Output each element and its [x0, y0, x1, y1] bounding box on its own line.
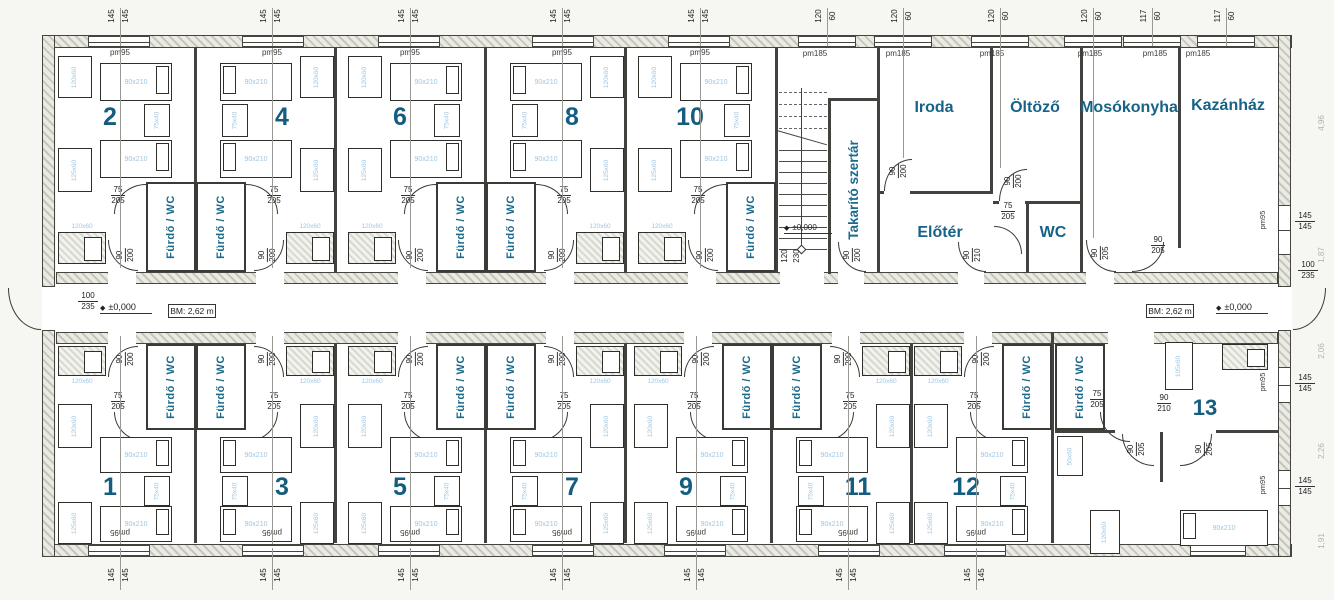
window-dim-b: 60 [905, 3, 915, 29]
sink [602, 237, 620, 261]
foyer-door-dim: 90210 [962, 242, 982, 268]
window [88, 36, 150, 47]
dim-tick [1000, 8, 1001, 46]
foyer-door-dim-a: 90 [962, 248, 973, 263]
dim-tick [696, 548, 697, 590]
bed-size-label: 90x210 [125, 521, 148, 528]
bath-door-dim-a: 75 [843, 391, 858, 402]
main-door-dim-left-b: 235 [78, 302, 97, 312]
wardrobe-label: 125x60 [71, 159, 78, 180]
dim-tick [120, 8, 121, 46]
wardrobe-label: 120x60 [889, 415, 896, 436]
wardrobe-label: 125x60 [647, 512, 654, 533]
window-dim-b: 60 [829, 3, 839, 29]
wardrobe-label: 120x60 [71, 415, 78, 436]
nightstand-label: 75x40 [154, 482, 161, 500]
window-dim-a: 145 [398, 562, 408, 588]
nightstand: 75x40 [434, 476, 460, 506]
wall-segment [624, 48, 627, 272]
door-gap [1086, 272, 1114, 284]
door-arc-icon [8, 288, 41, 330]
window-line [243, 551, 303, 552]
wardrobe-label: 120x60 [71, 66, 78, 87]
bath-door-dim-b: 205 [398, 402, 417, 412]
room-number: 3 [264, 472, 300, 502]
sink [312, 237, 330, 261]
bed-size-label: 90x210 [245, 79, 268, 86]
wardrobe: 125x60 [590, 148, 624, 192]
pillow [446, 66, 459, 94]
nightstand: 75x40 [222, 476, 248, 506]
pm-label: pm185 [1138, 48, 1172, 58]
nightstand-label: 75x40 [444, 482, 451, 500]
pillow [513, 440, 526, 466]
boiler-label: Kazánház [1181, 95, 1275, 117]
wardrobe-label: 50x60 [1067, 447, 1074, 465]
kitchen-counter [348, 346, 396, 376]
witness-line [1093, 46, 1094, 238]
nightstand: 75x40 [512, 104, 538, 137]
counter-label: 120x60 [58, 377, 106, 386]
boiler-door-dim-b: 205 [1148, 246, 1167, 256]
witness-line [562, 336, 563, 544]
wardrobe-label: 120x60 [1101, 521, 1108, 542]
wardrobe-label: 125x60 [889, 512, 896, 533]
pillow [1012, 440, 1025, 466]
window-dim-a: 145 [260, 3, 270, 29]
wall-left-upper [42, 35, 55, 287]
laundry-door-dim-a: 90 [1090, 246, 1101, 261]
bed: 90x210 [1180, 510, 1268, 546]
sink [374, 351, 392, 373]
door-arc-icon [1293, 288, 1326, 330]
wardrobe: 125x60 [300, 148, 334, 192]
sink [664, 237, 682, 261]
wardrobe-label: 125x60 [313, 512, 320, 533]
main-door-dim-right-b: 235 [1298, 271, 1317, 281]
witness-line [976, 336, 977, 544]
wall-segment [828, 98, 831, 274]
wardrobe: 125x60 [300, 502, 334, 544]
pillow [732, 509, 745, 535]
bed-size-label: 90x210 [415, 452, 438, 459]
bed-size-label: 90x210 [125, 156, 148, 163]
kitchen-counter [286, 346, 334, 376]
entry-door-dim: 90200 [833, 346, 853, 372]
bed-size-label: 90x210 [535, 79, 558, 86]
room13-door-dim-b: 210 [1154, 404, 1173, 414]
bed-size-label: 90x210 [415, 79, 438, 86]
door-gap [108, 272, 136, 284]
laundry-label: Mosókonyha [1079, 97, 1179, 119]
window-dim-b: 145 [122, 3, 132, 29]
room13-vestibule-dim-a-a: 90 [1126, 442, 1137, 457]
bed: 90x210 [220, 63, 292, 101]
entry-door-dim-a: 90 [547, 352, 558, 367]
bed: 90x210 [796, 437, 868, 473]
pillow [446, 509, 459, 535]
window-line [1279, 230, 1290, 231]
edge-dim: 1,91 [1316, 526, 1326, 556]
entry-door-dim: 90200 [971, 346, 991, 372]
stair-tread [779, 172, 827, 173]
wall-segment [910, 344, 913, 543]
bath-door-dim-b: 205 [684, 402, 703, 412]
wall-segment [1026, 201, 1029, 272]
window [1278, 367, 1291, 403]
pm-label: pm185 [1073, 48, 1107, 58]
pillow [513, 143, 526, 171]
wc-label: WC [1033, 222, 1073, 244]
door-gap [958, 272, 984, 284]
wall-segment [828, 98, 880, 101]
stair-tread [779, 238, 827, 239]
stair-dashed-line [779, 92, 827, 93]
bed-size-label: 90x210 [981, 452, 1004, 459]
bath-label: Fürdő / WC [789, 342, 805, 432]
entry-door-dim: 90200 [115, 242, 135, 268]
pm-label: pm185 [975, 48, 1009, 58]
stair-level-marker: ±0,000 [784, 222, 832, 234]
window-dim-a: 145 [684, 562, 694, 588]
pillow [1012, 509, 1025, 535]
entry-door-dim-b: 200 [982, 349, 992, 368]
kitchen-counter [634, 346, 682, 376]
pm-label: pm185 [881, 48, 915, 58]
wall-segment [334, 48, 337, 272]
entry-door-dim-a: 90 [833, 352, 844, 367]
bath-door-dim: 75205 [388, 391, 428, 411]
bed-size-label: 90x210 [415, 521, 438, 528]
wardrobe-label: 125x60 [651, 159, 658, 180]
room13-vestibule-dim-b: 90205 [1194, 436, 1214, 462]
counter-label: 120x60 [638, 222, 686, 231]
level-marker-right: ±0,000 [1216, 302, 1268, 314]
wardrobe: 120x60 [348, 404, 382, 448]
window-dim-a: 120 [815, 3, 825, 29]
window-dim-a: 145 [550, 562, 560, 588]
edge-dim: 2,26 [1316, 436, 1326, 466]
wardrobe: 125x60 [348, 502, 382, 544]
wardrobe-label: 120x60 [361, 415, 368, 436]
room13-vestibule-dim-b-b: 205 [1205, 439, 1215, 458]
wardrobe-label: 120x60 [313, 66, 320, 87]
sink [602, 351, 620, 373]
entry-door-dim-b: 200 [126, 349, 136, 368]
witness-line [272, 336, 273, 544]
window-dim-a: 120 [1081, 3, 1091, 29]
main-door-gap-right [1278, 287, 1292, 330]
cleaning-door-dim-a: 90 [842, 248, 853, 263]
wardrobe-label: 120x60 [313, 415, 320, 436]
right-window-dim-b: 145 [1295, 222, 1314, 232]
wardrobe: 120x60 [300, 56, 334, 98]
wardrobe: 120x60 [1090, 510, 1120, 554]
cleaning-door-dim: 90200 [842, 242, 862, 268]
window-dim-a: 117 [1214, 3, 1224, 29]
kitchen-counter [286, 232, 334, 264]
room-number: 2 [92, 102, 128, 132]
pillow [513, 509, 526, 535]
door-gap [884, 191, 910, 194]
window [532, 36, 594, 47]
window-dim-a: 145 [836, 562, 846, 588]
dim-tick [120, 548, 121, 590]
bath-door-dim-a: 75 [401, 391, 416, 402]
pm-label: pm185 [1181, 48, 1215, 58]
bath-label: Fürdő / WC [213, 182, 229, 272]
nightstand: 75x40 [724, 104, 750, 137]
witness-line [120, 336, 121, 544]
dim-tick [848, 548, 849, 590]
kitchen-counter [638, 232, 686, 264]
wardrobe: 125x60 [634, 502, 668, 544]
nightstand-label: 75x40 [734, 112, 741, 130]
counter-label: 120x60 [576, 377, 624, 386]
office-door-dim-b: 200 [899, 161, 909, 180]
window-dim-b: 145 [564, 562, 574, 588]
bed: 90x210 [956, 437, 1028, 473]
wardrobe-label: 125x60 [927, 512, 934, 533]
witness-line [410, 336, 411, 544]
window-line [1191, 551, 1245, 552]
door-gap [398, 272, 426, 284]
nightstand: 75x40 [144, 476, 170, 506]
dim-tick [976, 548, 977, 590]
wall-segment [334, 344, 337, 543]
bed: 90x210 [100, 140, 172, 178]
wardrobe: 105x60 [1165, 342, 1193, 390]
wardrobe-label: 120x60 [603, 415, 610, 436]
office-door-dim: 90200 [888, 158, 908, 184]
sink [940, 351, 958, 373]
entry-door-dim: 90200 [695, 242, 715, 268]
stair-dashed-line [779, 116, 827, 117]
bath-label: Fürdő / WC [503, 182, 519, 272]
window-line [379, 551, 439, 552]
window-line [1279, 488, 1290, 489]
stair-tread [779, 216, 827, 217]
window [1190, 545, 1246, 556]
bed-size-label: 90x210 [701, 452, 724, 459]
wardrobe: 125x60 [638, 148, 672, 192]
window-dim-b: 145 [274, 562, 284, 588]
window-line [89, 551, 149, 552]
wc-door-dim-b: 205 [998, 212, 1017, 222]
bath-door-dim: 75205 [830, 391, 870, 411]
bath-door-dim-13-b: 205 [1087, 400, 1106, 410]
pillow [513, 66, 526, 94]
entry-door-dim-b: 200 [706, 245, 716, 264]
entry-door-dim: 90200 [115, 346, 135, 372]
bath-label: Fürdő / WC [453, 182, 469, 272]
witness-line [700, 48, 701, 268]
pm-label: pm95 [1254, 207, 1270, 233]
room13-vestibule-dim-a-b: 205 [1137, 439, 1147, 458]
room-number: 8 [554, 102, 590, 132]
main-door-gap-left [42, 287, 56, 330]
witness-line [848, 336, 849, 544]
window-dim-b: 145 [564, 3, 574, 29]
window-dim-b: 145 [274, 3, 284, 29]
window-dim-b: 145 [412, 562, 422, 588]
dim-tick [1152, 8, 1153, 46]
nightstand-label: 75x40 [154, 112, 161, 130]
bath-door-dim: 75205 [674, 391, 714, 411]
nightstand: 75x40 [720, 476, 746, 506]
wardrobe-label: 125x60 [313, 159, 320, 180]
window [532, 545, 594, 556]
room-number: 10 [672, 102, 708, 132]
bath-door-dim-a: 75 [557, 391, 572, 402]
office-door-dim-a: 90 [888, 164, 899, 179]
kitchen-counter [862, 346, 910, 376]
entry-door-dim: 90200 [547, 242, 567, 268]
witness-line [1000, 46, 1001, 168]
boiler-door-dim: 90205 [1140, 235, 1176, 255]
window-line [243, 42, 303, 43]
wc-door-dim-a: 75 [1001, 201, 1016, 212]
dim-tick [562, 548, 563, 590]
bath-door-dim-a: 75 [967, 391, 982, 402]
stair-dashed-line [779, 128, 827, 129]
bath-label: Fürdő / WC [743, 182, 759, 272]
floor-plan: Földszint Közlekedő 120x60125x6090x21090… [0, 0, 1334, 600]
bath-label: Fürdő / WC [503, 342, 519, 432]
bed: 90x210 [676, 437, 748, 473]
foyer-label: Előtér [905, 222, 975, 244]
bed-size-label: 90x210 [705, 156, 728, 163]
pillow [446, 440, 459, 466]
pm-label: pm95 [1254, 369, 1270, 395]
bm-box-right: BM: 2,62 m [1146, 304, 1194, 318]
entry-door-dim: 90200 [257, 242, 277, 268]
wardrobe: 120x60 [58, 56, 92, 98]
pillow [223, 66, 236, 94]
window-line [533, 551, 593, 552]
dim-tick [410, 548, 411, 590]
counter-label: 120x60 [634, 377, 682, 386]
bed: 90x210 [100, 437, 172, 473]
bath-door-dim-a: 75 [111, 391, 126, 402]
level-value: ±0,000 [792, 223, 816, 232]
wardrobe-label: 125x60 [71, 512, 78, 533]
bath-label: Fürdő / WC [739, 342, 755, 432]
witness-line [272, 48, 273, 268]
stair-tread [779, 194, 827, 195]
edge-dim: 4,96 [1316, 108, 1326, 138]
entry-door-dim: 90200 [691, 346, 711, 372]
room-number: 5 [382, 472, 418, 502]
right-window-dim-a: 145 [1295, 476, 1314, 487]
nightstand: 75x40 [222, 104, 248, 137]
right-window-dim-a: 145 [1295, 373, 1314, 384]
dim-tick [410, 8, 411, 46]
room13-vestibule-dim-b-a: 90 [1194, 442, 1205, 457]
counter-label: 120x60 [348, 377, 396, 386]
bath-label: Fürdő / WC [213, 342, 229, 432]
kitchen-counter [576, 232, 624, 264]
sink [374, 237, 392, 261]
wardrobe-label: 125x60 [603, 512, 610, 533]
window [242, 545, 304, 556]
wardrobe-label: 120x60 [651, 66, 658, 87]
bath-label: Fürdő / WC [1072, 342, 1088, 432]
door-gap [398, 332, 426, 344]
nightstand-label: 75x40 [808, 482, 815, 500]
wall-segment [1160, 432, 1163, 482]
window [1278, 205, 1291, 255]
bath-door-dim-b: 205 [264, 402, 283, 412]
kitchen-counter [348, 232, 396, 264]
room-number: 1 [92, 472, 128, 502]
window [378, 36, 440, 47]
dressing-label: Öltöző [995, 97, 1075, 119]
room13-vestibule-dim-a: 90205 [1126, 436, 1146, 462]
bath-door-dim-b: 205 [554, 402, 573, 412]
bath-door-dim-13: 75205 [1080, 389, 1114, 409]
bath-door-dim-b: 205 [108, 402, 127, 412]
pillow [732, 440, 745, 466]
wall-left-lower [42, 330, 55, 557]
entry-door-dim-b: 200 [416, 245, 426, 264]
counter-label: 120x60 [286, 377, 334, 386]
right-window-dim: 145145 [1291, 373, 1319, 393]
edge-dim: 1,87 [1316, 240, 1326, 270]
bed-size-label: 90x210 [705, 79, 728, 86]
stair-tread [779, 205, 827, 206]
dim-tick [700, 8, 701, 46]
bath-door-dim-13-a: 75 [1090, 389, 1105, 400]
wall-segment [1178, 48, 1181, 248]
witness-line [562, 48, 563, 268]
window-line [533, 42, 593, 43]
cleaning-door-dim-b: 200 [853, 245, 863, 264]
door-gap [108, 332, 136, 344]
window [818, 545, 880, 556]
pillow [736, 66, 749, 94]
right-window-dim-b: 145 [1295, 487, 1314, 497]
bath-door-dim: 75205 [544, 391, 584, 411]
kitchen-counter [58, 346, 106, 376]
entry-door-dim-a: 90 [257, 248, 268, 263]
witness-line [410, 48, 411, 268]
room-number: 9 [668, 472, 704, 502]
bed: 90x210 [220, 140, 292, 178]
dim-tick [903, 8, 904, 46]
wardrobe-label: 120x60 [603, 66, 610, 87]
dim-tick [1093, 8, 1094, 46]
pillow [223, 440, 236, 466]
bed-size-label: 90x210 [535, 156, 558, 163]
bed-size-label: 90x210 [701, 521, 724, 528]
window-dim-a: 145 [108, 3, 118, 29]
dim-tick [827, 8, 828, 46]
wardrobe: 120x60 [590, 404, 624, 448]
room-number: 6 [382, 102, 418, 132]
stair-dashed-line [779, 104, 827, 105]
window-line [945, 551, 1005, 552]
kitchen-counter [576, 346, 624, 376]
wardrobe: 125x60 [348, 148, 382, 192]
boiler-door-dim-a: 90 [1151, 235, 1166, 246]
sink [660, 351, 678, 373]
corridor-wall-bottom [56, 332, 1278, 344]
sink [1247, 349, 1265, 367]
window-dim-b: 145 [412, 3, 422, 29]
door-gap [546, 272, 574, 284]
pm-label: pm95 [1254, 472, 1270, 498]
